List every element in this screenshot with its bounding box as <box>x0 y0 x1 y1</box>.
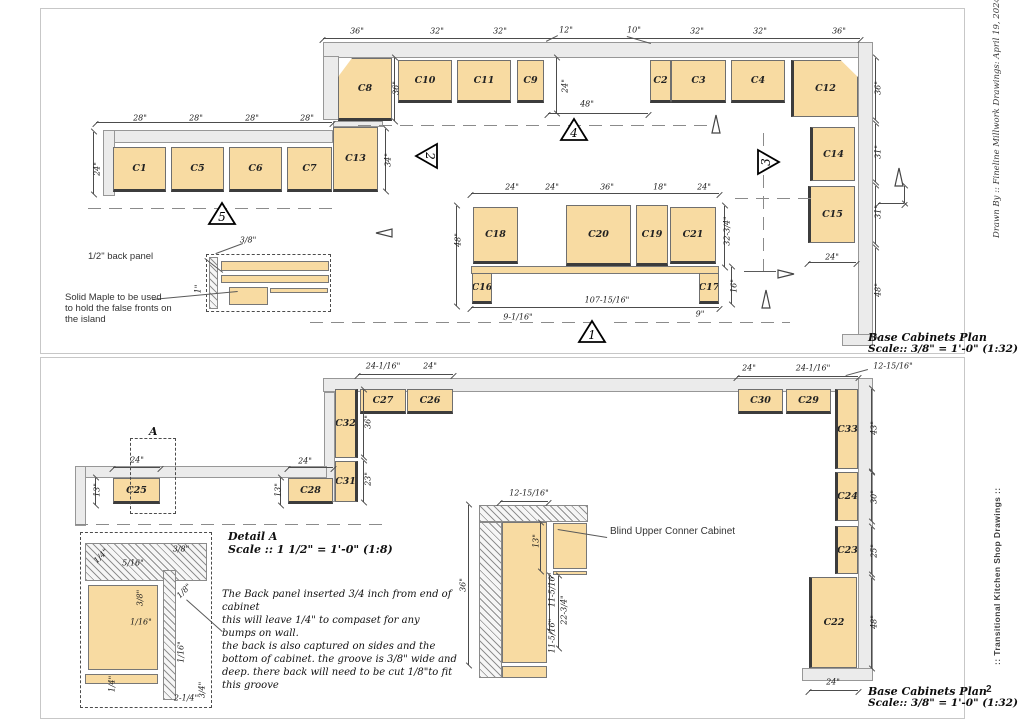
section-marker-3: 3 <box>756 147 782 181</box>
dim-label: 3/8" <box>173 545 190 554</box>
dim-label: 36" <box>600 183 614 192</box>
cabinet-c10: C10 <box>398 60 452 103</box>
hatched-wall <box>479 505 588 522</box>
dim-label: 24" <box>742 364 756 373</box>
dim-label: 12" <box>559 26 573 35</box>
wall <box>323 56 339 120</box>
dimension-line <box>358 374 453 375</box>
wall <box>323 42 860 58</box>
dim-label: 36" <box>364 415 373 429</box>
sheet1-scale: Scale:: 3/8" = 1'-0" (1:32) <box>868 343 1018 355</box>
detail-boundary <box>206 254 331 312</box>
dim-label: 36" <box>350 27 364 36</box>
dim-label: 3/8" <box>240 236 257 245</box>
cabinet-c28: C28 <box>288 478 333 504</box>
dimension-line <box>113 467 160 468</box>
hatched-wall <box>479 522 502 678</box>
svg-text:5: 5 <box>218 210 226 224</box>
annotation-note: Solid Maple to be used to hold the false… <box>65 292 172 325</box>
dim-label: 23" <box>364 472 373 486</box>
dimension-line <box>548 113 648 114</box>
cabinet-c8: C8 <box>338 58 392 121</box>
dim-label: 34" <box>384 153 393 167</box>
panel <box>502 666 547 678</box>
cabinet-c12: C12 <box>791 60 858 117</box>
dashed-reference-line <box>75 524 390 525</box>
dim-label: 31" <box>874 145 883 159</box>
margin-series-title: :: Transitional Kitchen Shop Drawings :: <box>992 487 1002 665</box>
dim-label: 13" <box>532 534 541 548</box>
dim-label: 2-1/4" <box>174 694 198 703</box>
dim-label: 24" <box>130 456 144 465</box>
dim-label: 13" <box>274 483 283 497</box>
dim-label: 3/4" <box>198 682 207 699</box>
cabinet-c7: C7 <box>287 147 332 192</box>
dim-label: 48" <box>874 283 883 297</box>
dim-label: 24" <box>298 457 312 466</box>
dim-label: 11-5/16" <box>548 619 557 654</box>
wall <box>858 42 873 336</box>
cabinet-c20: C20 <box>566 205 631 266</box>
cabinet-c21: C21 <box>670 207 716 264</box>
dimension-line <box>737 376 858 377</box>
dim-label: 25" <box>870 544 879 558</box>
section-marker-5: 5 <box>207 200 237 230</box>
dim-label: 24" <box>826 678 840 687</box>
dim-label: 24" <box>825 253 839 262</box>
svg-text:4: 4 <box>569 126 578 140</box>
cabinet-c3: C3 <box>671 60 726 103</box>
cabinet-c9: C9 <box>517 60 544 103</box>
cabinet-c22: C22 <box>809 577 857 668</box>
dim-label: 9" <box>696 310 705 319</box>
dim-label: 48" <box>870 615 879 629</box>
dim-label: 3/8" <box>136 590 145 607</box>
section-marker-4: 4 <box>559 116 589 146</box>
dim-label: 36" <box>874 81 883 95</box>
wall <box>75 466 86 526</box>
dim-label: 107-15/16" <box>585 296 630 305</box>
dim-label: 30" <box>870 490 879 504</box>
dim-label: 24" <box>561 79 570 93</box>
cabinet-c33: C33 <box>835 389 858 469</box>
dim-label: 22-3/4" <box>560 595 569 624</box>
annotation-note: A <box>149 425 158 438</box>
annotation-note: The Back panel inserted 3/4 inch from en… <box>222 588 467 692</box>
dim-label: 48" <box>454 233 463 247</box>
dim-label: 11-5/16" <box>548 573 557 608</box>
cabinet-c26: C26 <box>407 389 453 414</box>
dim-label: 48" <box>580 100 594 109</box>
dim-label: 24-1/16" <box>366 362 401 371</box>
dim-label: 36" <box>392 81 401 95</box>
cabinet-c30: C30 <box>738 389 783 414</box>
dim-label: 32" <box>690 27 704 36</box>
section-marker-2: 2 <box>413 141 439 175</box>
dashed-reference-line <box>735 198 811 199</box>
cabinet-c14: C14 <box>810 127 855 181</box>
dimension-line <box>809 690 858 691</box>
dim-label: 24" <box>423 362 437 371</box>
cabinet-c6: C6 <box>229 147 282 192</box>
dim-label: 1/16" <box>130 618 152 627</box>
dashed-reference-line <box>614 322 790 323</box>
dimension-line <box>456 206 457 306</box>
cabinet-c15: C15 <box>808 186 855 243</box>
svg-text:3: 3 <box>759 158 773 166</box>
cabinet-c2: C2 <box>650 60 671 103</box>
svg-text:2: 2 <box>423 151 437 160</box>
annotation-note: Detail A <box>228 530 277 543</box>
dim-label: 1/4" <box>108 676 117 693</box>
direction-arrow-icon <box>374 224 394 243</box>
dim-label: 24" <box>545 183 559 192</box>
dim-label: 32-3/4" <box>723 216 732 245</box>
dim-label: 24-1/16" <box>796 364 831 373</box>
dim-label: 36" <box>832 27 846 36</box>
direction-arrow-icon <box>760 288 772 314</box>
dim-label: 28" <box>189 114 203 123</box>
dim-label: 28" <box>245 114 259 123</box>
dim-label: 31" <box>874 205 883 219</box>
dashed-reference-line <box>358 125 710 126</box>
dimension-line <box>808 262 856 263</box>
drawing-page: Base Cabinets Plan Scale:: 3/8" = 1'-0" … <box>0 0 1024 724</box>
dim-label: 28" <box>133 114 147 123</box>
cabinet-c16: C16 <box>472 273 492 304</box>
cabinet-c11: C11 <box>457 60 511 103</box>
dimension-line <box>323 38 860 39</box>
page-number: 2 <box>986 684 992 695</box>
dimension-line <box>471 193 719 194</box>
wall <box>103 130 333 143</box>
section-marker-1: 1 <box>577 318 607 348</box>
dim-label: 16" <box>730 279 739 293</box>
annotation-note: 1/2" back panel <box>88 251 153 262</box>
dim-label: 9-1/16" <box>503 313 532 322</box>
cabinet-c17: C17 <box>699 273 719 304</box>
cabinet-c31: C31 <box>335 461 358 502</box>
cabinet-c1: C1 <box>113 147 166 192</box>
cabinet-c23: C23 <box>835 526 858 574</box>
dim-label: 32" <box>430 27 444 36</box>
panel <box>471 266 719 274</box>
dim-label: 13" <box>93 483 102 497</box>
dim-label: 10" <box>627 26 641 35</box>
dimension-line <box>471 307 719 308</box>
cabinet-c27: C27 <box>360 389 406 414</box>
annotation-note: Scale :: 1 1/2" = 1'-0" (1:8) <box>228 543 393 556</box>
sheet2-scale: Scale:: 3/8" = 1'-0" (1:32) <box>868 697 1018 709</box>
dimension-line <box>500 501 548 502</box>
svg-text:1: 1 <box>588 328 596 342</box>
cabinet-c29: C29 <box>786 389 831 414</box>
cabinet-c4: C4 <box>731 60 785 103</box>
leader-line <box>744 271 776 272</box>
dimension-line <box>288 467 333 468</box>
dim-label: 1" <box>194 285 203 294</box>
dim-label: 24" <box>505 183 519 192</box>
dimension-line <box>556 58 557 113</box>
dim-label: 24" <box>93 162 102 176</box>
dim-label: 18" <box>653 183 667 192</box>
dim-label: 43" <box>870 421 879 435</box>
direction-arrow-icon <box>710 113 722 139</box>
detail-boundary <box>130 438 176 514</box>
cabinet-c5: C5 <box>171 147 224 192</box>
annotation-note: Blind Upper Conner Cabinet <box>610 526 735 537</box>
margin-drawn-by: Drawn By :: Fineline Millwork Drawings: … <box>992 0 1002 238</box>
dim-label: 1/16" <box>177 641 186 663</box>
dim-label: 5/16" <box>122 559 144 568</box>
dimension-line <box>878 203 904 204</box>
dim-label: 32" <box>753 27 767 36</box>
direction-arrow-icon <box>893 166 905 192</box>
dim-label: 24" <box>697 183 711 192</box>
cabinet-c24: C24 <box>835 472 858 521</box>
dim-label: 12-15/16" <box>873 362 913 371</box>
cabinet-c19: C19 <box>636 205 668 266</box>
cabinet-c18: C18 <box>473 207 518 264</box>
dimension-line <box>468 505 469 665</box>
dim-label: 12-15/16" <box>509 489 549 498</box>
dimension-line <box>96 122 332 123</box>
dim-label: 28" <box>300 114 314 123</box>
cabinet-c13: C13 <box>333 127 378 192</box>
cabinet-c32: C32 <box>335 389 358 458</box>
direction-arrow-icon <box>776 265 796 284</box>
dashed-reference-line <box>310 322 590 323</box>
dim-label: 32" <box>493 27 507 36</box>
